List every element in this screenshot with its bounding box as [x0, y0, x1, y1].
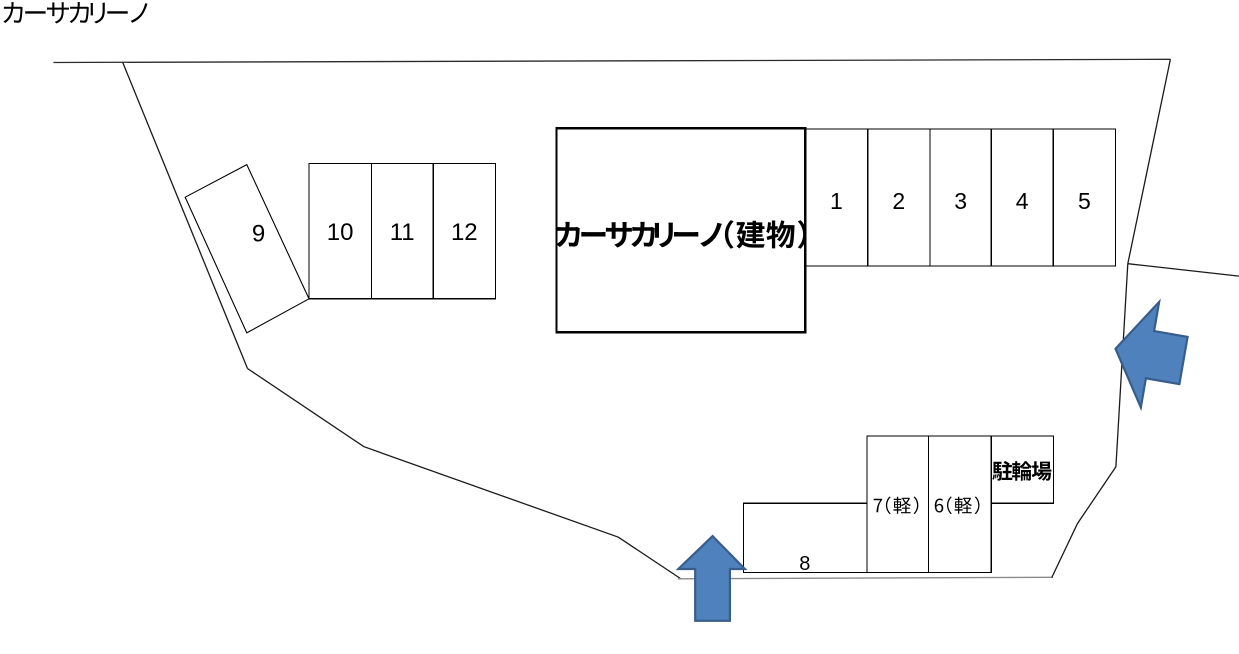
svg-text:4: 4 [1016, 188, 1029, 214]
svg-text:8: 8 [799, 553, 810, 575]
svg-text:10: 10 [327, 219, 354, 246]
svg-text:1: 1 [830, 188, 843, 214]
svg-text:2: 2 [892, 188, 905, 214]
svg-text:11: 11 [390, 219, 415, 246]
svg-text:3: 3 [954, 188, 967, 214]
svg-text:5: 5 [1078, 188, 1091, 214]
svg-text:9: 9 [252, 220, 265, 247]
svg-text:12: 12 [451, 219, 478, 246]
